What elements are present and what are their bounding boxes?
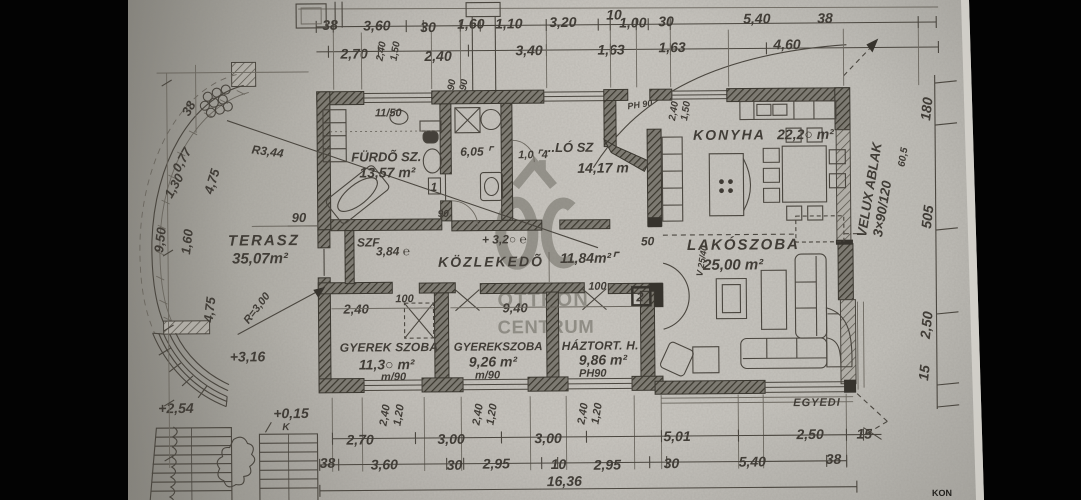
svg-text:EGYEDI: EGYEDI: [793, 397, 841, 409]
svg-text:K: K: [282, 422, 290, 433]
svg-text:90: 90: [458, 78, 471, 91]
svg-text:1,60: 1,60: [457, 16, 485, 32]
svg-text:9,26 m²: 9,26 m²: [469, 353, 518, 369]
svg-text:PH90: PH90: [579, 368, 607, 380]
svg-text:30: 30: [420, 19, 436, 35]
svg-text:FÜRDÕ SZ.: FÜRDÕ SZ.: [351, 149, 421, 165]
svg-text:25,00 m²: 25,00 m²: [702, 256, 764, 273]
svg-text:1,00: 1,00: [619, 14, 647, 30]
svg-text:50: 50: [641, 234, 655, 248]
svg-text:3,20: 3,20: [549, 14, 577, 30]
svg-text:2,70: 2,70: [339, 45, 368, 61]
svg-text:...LÓ SZ: ...LÓ SZ: [544, 140, 594, 155]
svg-text:5,40: 5,40: [743, 10, 771, 26]
svg-text:90: 90: [446, 78, 459, 91]
svg-text:14,17 m: 14,17 m: [577, 159, 628, 175]
svg-text:3,00: 3,00: [534, 430, 562, 446]
svg-text:3,84 ℮: 3,84 ℮: [376, 244, 410, 258]
svg-text:3,60: 3,60: [371, 456, 399, 472]
svg-text:16,36: 16,36: [547, 473, 582, 489]
svg-text:1,63: 1,63: [597, 41, 625, 57]
svg-text:10: 10: [551, 456, 567, 472]
svg-text:KÖZLEKEDÕ: KÖZLEKEDÕ: [438, 252, 544, 270]
svg-text:11,84m²⌜: 11,84m²⌜: [560, 249, 620, 265]
svg-text:3,40: 3,40: [515, 42, 543, 58]
svg-text:22,2○ m²: 22,2○ m²: [776, 126, 834, 142]
svg-text:90: 90: [292, 210, 307, 225]
svg-text:9,86 m²: 9,86 m²: [579, 351, 628, 367]
svg-text:11/50: 11/50: [375, 107, 403, 119]
svg-text:KON: KON: [932, 488, 952, 498]
svg-text:505: 505: [918, 204, 937, 229]
svg-text:GYEREKSZOBA: GYEREKSZOBA: [454, 341, 543, 354]
svg-text:+ 3,2○ ℮: + 3,2○ ℮: [482, 232, 527, 246]
svg-text:13,57 m²: 13,57 m²: [359, 164, 415, 180]
svg-text:TERASZ: TERASZ: [228, 232, 300, 250]
svg-text:100: 100: [588, 281, 607, 293]
svg-text:3,00: 3,00: [437, 431, 465, 447]
svg-text:180: 180: [917, 96, 936, 121]
svg-text:m/90: m/90: [381, 371, 407, 383]
svg-text:38: 38: [320, 455, 336, 471]
svg-text:4,75: 4,75: [201, 295, 219, 324]
svg-text:100: 100: [395, 293, 414, 305]
svg-text:2,95: 2,95: [482, 455, 511, 471]
svg-text:35,07m²: 35,07m²: [232, 250, 289, 267]
svg-text:38: 38: [826, 451, 842, 467]
svg-text:6,05 ⌜: 6,05 ⌜: [460, 144, 495, 158]
svg-text:5,40: 5,40: [739, 453, 767, 469]
svg-text:11,3○ m²: 11,3○ m²: [359, 356, 415, 372]
svg-text:9,50: 9,50: [151, 226, 169, 254]
svg-text:90: 90: [438, 209, 450, 220]
svg-text:1: 1: [430, 180, 437, 194]
svg-text:m/90: m/90: [475, 369, 501, 381]
svg-text:2: 2: [635, 289, 644, 304]
svg-text:2,40: 2,40: [423, 48, 452, 64]
svg-text:30: 30: [664, 455, 680, 471]
svg-text:GYEREK SZOBA: GYEREK SZOBA: [340, 340, 439, 355]
svg-text:38: 38: [817, 10, 833, 26]
svg-text:2,95: 2,95: [593, 456, 622, 472]
svg-text:1,60: 1,60: [178, 228, 196, 256]
svg-text:30: 30: [447, 457, 463, 473]
svg-text:1,63: 1,63: [658, 39, 686, 55]
svg-text:KONYHA: KONYHA: [693, 126, 766, 143]
svg-text:30: 30: [658, 13, 674, 29]
svg-text:3,60: 3,60: [363, 17, 391, 33]
svg-text:5,01: 5,01: [663, 428, 691, 444]
svg-text:15: 15: [915, 364, 933, 382]
svg-text:+2,54: +2,54: [158, 400, 194, 416]
svg-text:2,50: 2,50: [795, 426, 824, 442]
svg-text:CENTRUM: CENTRUM: [498, 316, 595, 338]
svg-text:+0,15: +0,15: [273, 405, 309, 421]
svg-text:2,70: 2,70: [345, 431, 374, 447]
svg-text:+3,16: +3,16: [230, 348, 266, 364]
svg-text:HÁZTORT. H.: HÁZTORT. H.: [562, 337, 639, 353]
svg-text:2,50: 2,50: [917, 310, 936, 340]
svg-text:1,10: 1,10: [495, 15, 523, 31]
